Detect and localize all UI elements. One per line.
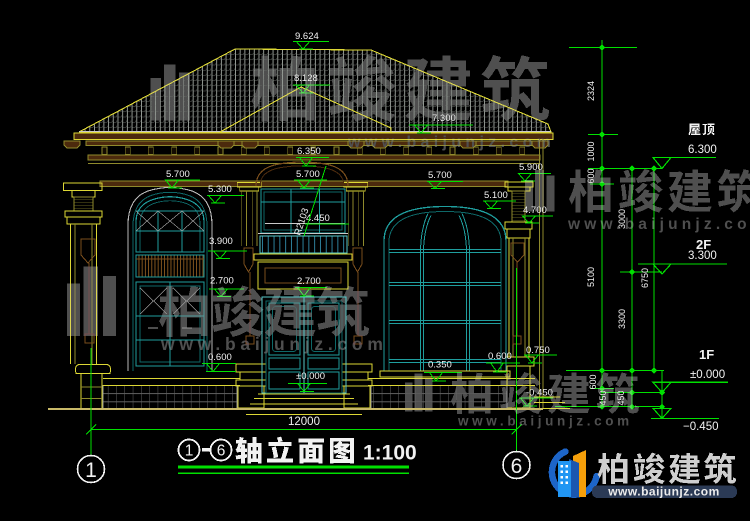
svg-text:−0.450: −0.450 xyxy=(683,421,719,433)
svg-text:2.700: 2.700 xyxy=(297,276,321,287)
svg-text:0.600: 0.600 xyxy=(488,351,512,362)
svg-text:5100: 5100 xyxy=(586,267,596,287)
svg-text:6.350: 6.350 xyxy=(297,146,321,157)
svg-text:6: 6 xyxy=(511,455,523,478)
svg-text:1: 1 xyxy=(185,443,194,460)
svg-text:2.700: 2.700 xyxy=(210,276,234,287)
svg-text:600: 600 xyxy=(588,374,598,389)
svg-text:5.100: 5.100 xyxy=(484,190,508,201)
svg-text:12000: 12000 xyxy=(288,416,320,428)
svg-text:www.baijunjz.com: www.baijunjz.com xyxy=(347,134,555,151)
svg-text:2324: 2324 xyxy=(586,81,596,101)
svg-text:www.baijunjz.com: www.baijunjz.com xyxy=(457,414,633,429)
svg-text:1000: 1000 xyxy=(586,141,596,161)
svg-text:6750: 6750 xyxy=(640,268,650,288)
svg-text:5.700: 5.700 xyxy=(296,169,320,180)
svg-text:5.300: 5.300 xyxy=(208,184,232,195)
svg-text:www.baijunjz.com: www.baijunjz.com xyxy=(160,334,388,354)
svg-text:www.baijunjz.com: www.baijunjz.com xyxy=(607,485,720,499)
svg-text:6.300: 6.300 xyxy=(688,144,717,156)
svg-text:±0.000: ±0.000 xyxy=(296,371,325,382)
svg-text:1:100: 1:100 xyxy=(363,442,417,465)
svg-text:5.700: 5.700 xyxy=(428,170,452,181)
svg-text:3300: 3300 xyxy=(617,309,627,329)
svg-text:3.900: 3.900 xyxy=(209,236,233,247)
svg-text:1: 1 xyxy=(85,459,97,482)
svg-text:3.300: 3.300 xyxy=(688,250,717,262)
svg-text:5.700: 5.700 xyxy=(166,169,190,180)
svg-text:9.624: 9.624 xyxy=(295,31,319,42)
svg-text:6: 6 xyxy=(217,443,226,460)
svg-text:0.350: 0.350 xyxy=(428,360,452,371)
svg-text:www.baijunjz.com: www.baijunjz.com xyxy=(567,216,750,233)
svg-text:±0.000: ±0.000 xyxy=(690,369,725,381)
svg-text:1F: 1F xyxy=(699,347,714,362)
